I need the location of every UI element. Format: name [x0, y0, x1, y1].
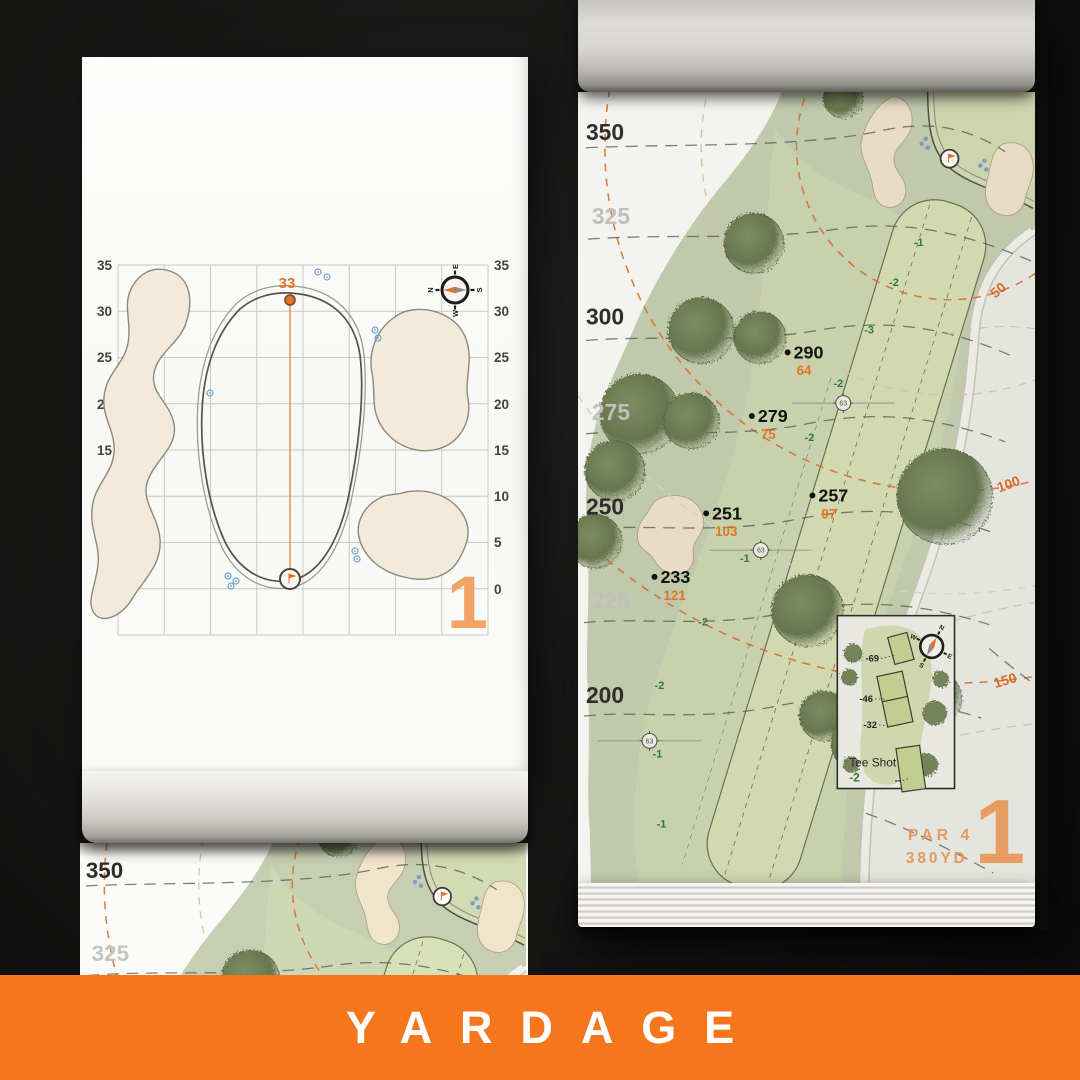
page-stack-edges — [578, 883, 1035, 927]
page-number: 1 — [447, 561, 488, 644]
axis-label: 35 — [494, 258, 510, 273]
back-edge-dot — [285, 295, 295, 305]
page-curl-top — [578, 0, 1035, 92]
hole-map-svg — [578, 92, 1035, 883]
axis-label: 35 — [97, 258, 113, 273]
green-outline — [202, 293, 362, 581]
right-booklet — [578, 0, 1048, 930]
axis-label: 30 — [494, 304, 509, 319]
axis-labels-right: 35 30 25 20 15 10 5 0 — [494, 258, 510, 597]
axis-label: 20 — [494, 397, 509, 412]
green-detail-map: 35 30 25 20 15 10 5 0 35 30 25 20 15 10 … — [82, 247, 528, 647]
green-detail-page: 35 30 25 20 15 10 5 0 35 30 25 20 15 10 … — [82, 57, 528, 771]
axis-label: 0 — [494, 582, 502, 597]
next-page-preview — [80, 843, 528, 975]
green-depth-label: 33 — [279, 275, 296, 292]
banner-title: YARDAGE — [318, 1002, 762, 1054]
green-page-bunkers — [91, 269, 469, 618]
axis-label: 25 — [97, 350, 113, 365]
axis-label: 5 — [494, 535, 502, 550]
sprinkler-dot-centers — [209, 271, 379, 587]
bunker-shape — [371, 309, 469, 450]
title-banner: YARDAGE — [0, 975, 1080, 1080]
axis-label: 15 — [97, 443, 113, 458]
axis-label: 10 — [494, 489, 509, 504]
page-curl-bottom — [82, 771, 528, 843]
axis-label: 25 — [494, 350, 510, 365]
left-booklet: 35 30 25 20 15 10 5 0 35 30 25 20 15 10 … — [82, 57, 528, 975]
axis-label: 30 — [97, 304, 112, 319]
hole-map-preview — [80, 843, 528, 975]
hole-map-page — [578, 92, 1035, 883]
yardage-book-mockup: N E S W — [0, 0, 1080, 1080]
pin-icon — [280, 569, 300, 589]
axis-label: 15 — [494, 443, 510, 458]
paper-grain — [578, 92, 1035, 883]
